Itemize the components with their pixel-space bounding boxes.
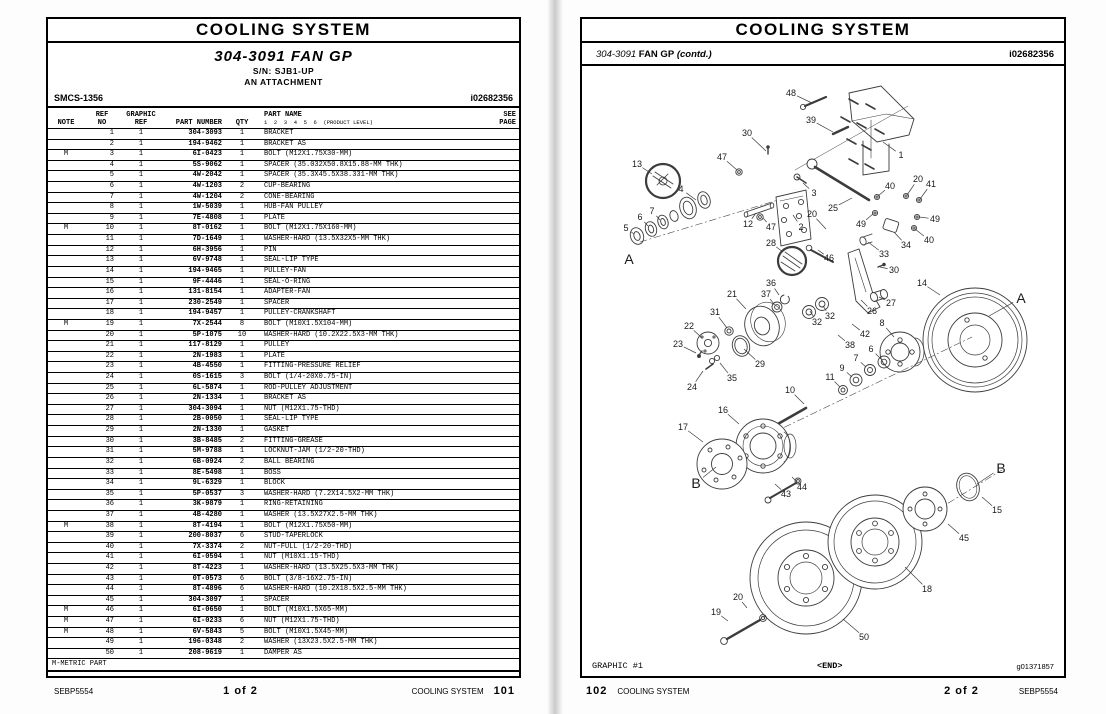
callout-leader <box>696 371 703 382</box>
cell-part: 6I-0594 <box>162 553 224 563</box>
table-row: 4218T-42231WASHER-HARD (13.5X25.5X3-MM T… <box>48 564 519 575</box>
cell-name: SEAL-O-RING <box>260 278 473 288</box>
cell-note <box>48 638 84 648</box>
cell-page <box>473 299 519 309</box>
cell-page <box>473 150 519 160</box>
page-title: COOLING SYSTEM <box>582 19 1064 43</box>
table-row: 3714B-42801WASHER (13.5X27X2.5-MM THK) <box>48 511 519 522</box>
cell-gref: 1 <box>120 140 162 150</box>
cell-page <box>473 193 519 203</box>
cell-qty: 3 <box>224 490 260 500</box>
cell-name: ADAPTER-FAN <box>260 288 473 298</box>
contd-label: (contd.) <box>677 49 712 60</box>
cell-ref: 10 <box>84 224 120 234</box>
cell-note: M <box>48 320 84 330</box>
cell-note <box>48 511 84 521</box>
table-row: 811W-50391HUB-FAN PULLEY <box>48 203 519 214</box>
callout-number: 40 <box>924 235 934 245</box>
cell-qty: 6 <box>224 617 260 627</box>
cell-qty: 1 <box>224 129 260 139</box>
table-row: 2612N-13341BRACKET AS <box>48 394 519 405</box>
cell-name: BRACKET <box>260 129 473 139</box>
page-right: COOLING SYSTEM 304-3091 FAN GP (contd.) … <box>580 17 1066 678</box>
cell-part: 4W-1203 <box>162 182 224 192</box>
cell-gref: 1 <box>120 596 162 606</box>
callout-leader <box>684 347 696 353</box>
callout-number: 1 <box>898 150 903 160</box>
sheet-number: 1 of 2 <box>223 685 258 697</box>
cell-ref: 25 <box>84 384 120 394</box>
cell-qty: 1 <box>224 140 260 150</box>
callout-leader <box>915 229 924 236</box>
cell-qty: 1 <box>224 500 260 510</box>
table-row: M4716I-02336NUT (M12X1.75-THD) <box>48 617 519 628</box>
cell-qty: 6 <box>224 585 260 595</box>
page-number: 101 <box>494 685 515 697</box>
cell-name: BOLT (M12X1.75X30-MM) <box>260 150 473 160</box>
cell-note <box>48 299 84 309</box>
table-row: 171230-25491SPACER <box>48 299 519 310</box>
cell-gref: 1 <box>120 447 162 457</box>
cell-name: STUD-TAPERLOCK <box>260 532 473 542</box>
cell-note <box>48 214 84 224</box>
cell-page <box>473 628 519 638</box>
table-header: NOTE REF NO GRAPHIC REF PART NUMBER QTY … <box>48 108 519 129</box>
cell-ref: 22 <box>84 352 120 362</box>
cell-qty: 1 <box>224 394 260 404</box>
cell-ref: 35 <box>84 490 120 500</box>
cell-gref: 1 <box>120 278 162 288</box>
cell-part: 304-3094 <box>162 405 224 415</box>
cell-ref: 7 <box>84 193 120 203</box>
sheet-number: 2 of 2 <box>944 685 979 697</box>
cell-ref: 47 <box>84 617 120 627</box>
cell-page <box>473 320 519 330</box>
cell-page <box>473 394 519 404</box>
table-row: 1216H-39561PIN <box>48 246 519 257</box>
cell-name: BALL BEARING <box>260 458 473 468</box>
cell-part: 8T-4194 <box>162 522 224 532</box>
cell-note: M <box>48 606 84 616</box>
cell-note: M <box>48 617 84 627</box>
cell-qty: 1 <box>224 267 260 277</box>
cell-name: SPACER <box>260 596 473 606</box>
cell-note <box>48 553 84 563</box>
cell-part: 7X-2544 <box>162 320 224 330</box>
table-row: 2410S-16153BOLT (1/4-20X0.75-IN) <box>48 373 519 384</box>
callout-number: 29 <box>755 359 765 369</box>
callout-number: 36 <box>766 278 776 288</box>
cell-part: 196-0348 <box>162 638 224 648</box>
callout-leader <box>880 267 888 269</box>
view-letter: B <box>691 475 700 491</box>
cell-gref: 1 <box>120 182 162 192</box>
cell-qty: 2 <box>224 543 260 553</box>
callout-number: 10 <box>785 385 795 395</box>
col-part-name: PART NAME1 2 3 4 5 6 (PRODUCT LEVEL) <box>260 111 473 127</box>
cell-gref: 1 <box>120 575 162 585</box>
cell-page <box>473 267 519 277</box>
cell-note <box>48 331 84 341</box>
callout-leader <box>907 184 914 195</box>
cell-page <box>473 246 519 256</box>
callout-number: 33 <box>879 249 889 259</box>
callout-number: 9 <box>839 363 844 373</box>
cell-note <box>48 278 84 288</box>
cell-part: 117-8129 <box>162 341 224 351</box>
cell-name: CONE-BEARING <box>260 193 473 203</box>
cell-part: 6I-0650 <box>162 606 224 616</box>
callout-leader <box>817 123 833 132</box>
cell-part: 5S-9062 <box>162 161 224 171</box>
cell-name: BLOCK <box>260 479 473 489</box>
page-title: COOLING SYSTEM <box>48 19 519 43</box>
callout-number: 34 <box>901 240 911 250</box>
doc-id: i02682356 <box>1009 49 1054 60</box>
group-number: 304-3091 <box>596 49 636 60</box>
cell-part: 194-9465 <box>162 267 224 277</box>
cell-ref: 29 <box>84 426 120 436</box>
cell-note <box>48 384 84 394</box>
cell-name: BOLT (M12X1.75X160-MM) <box>260 224 473 234</box>
cell-gref: 1 <box>120 649 162 659</box>
table-row: 2015P-107510WASHER-HARD (10.2X22.5X3-MM … <box>48 331 519 342</box>
cell-note <box>48 405 84 415</box>
cell-name: BOLT (M12X1.75X50-MM) <box>260 522 473 532</box>
cell-note <box>48 564 84 574</box>
cell-qty: 2 <box>224 193 260 203</box>
cell-gref: 1 <box>120 479 162 489</box>
graphic-footer: GRAPHIC #1 <END> g01371857 <box>592 661 1054 671</box>
callout-leader <box>803 183 809 189</box>
cell-name: BOSS <box>260 469 473 479</box>
cell-name: SPACER (35.032X50.8X15.88-MM THK) <box>260 161 473 171</box>
cell-qty: 1 <box>224 352 260 362</box>
cell-note <box>48 129 84 139</box>
section-label: COOLING SYSTEM <box>412 687 484 696</box>
callout-leader <box>878 190 885 196</box>
table-row: M1917X-25448BOLT (M10X1.5X104-MM) <box>48 320 519 331</box>
callout-number: 27 <box>886 298 896 308</box>
cell-page <box>473 161 519 171</box>
cell-gref: 1 <box>120 288 162 298</box>
callout-number: 49 <box>930 214 940 224</box>
cell-name: BOLT (3/8-16X2.75-IN) <box>260 575 473 585</box>
callout-leader <box>977 473 994 484</box>
cell-name: DAMPER AS <box>260 649 473 659</box>
table-row: 391200-80376STUD-TAPERLOCK <box>48 532 519 543</box>
cell-ref: 28 <box>84 415 120 425</box>
cell-part: 5P-1075 <box>162 331 224 341</box>
cell-name: NUT-FULL (1/2-20-THD) <box>260 543 473 553</box>
col-part-number: PART NUMBER <box>162 119 224 127</box>
cell-part: 9F-4446 <box>162 278 224 288</box>
cell-qty: 2 <box>224 437 260 447</box>
callout-number: 26 <box>867 306 877 316</box>
cell-qty: 1 <box>224 553 260 563</box>
callout-leader <box>868 242 879 250</box>
cell-name: BOLT (1/4-20X0.75-IN) <box>260 373 473 383</box>
cell-gref: 1 <box>120 150 162 160</box>
cell-page <box>473 437 519 447</box>
cell-ref: 39 <box>84 532 120 542</box>
callout-number: 18 <box>922 584 932 594</box>
cell-name: SEAL-LIP TYPE <box>260 415 473 425</box>
cell-part: 7X-3374 <box>162 543 224 553</box>
cell-ref: 37 <box>84 511 120 521</box>
cell-qty: 1 <box>224 278 260 288</box>
section-label: COOLING SYSTEM <box>617 687 689 696</box>
cell-gref: 1 <box>120 394 162 404</box>
footer-left-page: SEBP5554 1 of 2 COOLING SYSTEM 101 <box>46 682 521 700</box>
cell-qty: 1 <box>224 405 260 415</box>
cell-ref: 19 <box>84 320 120 330</box>
cell-ref: 43 <box>84 575 120 585</box>
cell-part: 5P-0537 <box>162 490 224 500</box>
cell-name: WASHER-HARD (10.2X22.5X3-MM THK) <box>260 331 473 341</box>
callout-number: 42 <box>860 329 870 339</box>
cell-name: SEAL-LIP TYPE <box>260 256 473 266</box>
table-row: M4616I-06501BOLT (M10X1.5X65-MM) <box>48 606 519 617</box>
callout-number: 48 <box>786 88 796 98</box>
table-row: M3818T-41941BOLT (M12X1.75X50-MM) <box>48 522 519 533</box>
cell-qty: 5 <box>224 628 260 638</box>
cell-page <box>473 649 519 659</box>
callout-number: 32 <box>825 311 835 321</box>
cell-page <box>473 553 519 563</box>
cell-part: 304-3093 <box>162 129 224 139</box>
cell-qty: 8 <box>224 320 260 330</box>
cell-qty: 1 <box>224 214 260 224</box>
cell-note <box>48 267 84 277</box>
cell-page <box>473 606 519 616</box>
cell-ref: 26 <box>84 394 120 404</box>
serial-number: S/N: SJB1-UP <box>48 66 519 76</box>
callout-number: 3 <box>811 188 816 198</box>
cell-gref: 1 <box>120 585 162 595</box>
cell-name: SPACER (35.3X45.5X38.331-MM THK) <box>260 171 473 181</box>
cell-name: GASKET <box>260 426 473 436</box>
cell-part: 8T-0162 <box>162 224 224 234</box>
cell-part: 0S-1615 <box>162 373 224 383</box>
cell-part: 6V-5843 <box>162 628 224 638</box>
cell-part: 6B-0924 <box>162 458 224 468</box>
cell-part: 200-8037 <box>162 532 224 542</box>
table-row: 3613K-98791RING-RETAINING <box>48 500 519 511</box>
cell-page <box>473 341 519 351</box>
col-note: NOTE <box>48 119 84 127</box>
cell-qty: 2 <box>224 182 260 192</box>
cell-ref: 6 <box>84 182 120 192</box>
cell-name: FITTING-GREASE <box>260 437 473 447</box>
cell-qty: 6 <box>224 575 260 585</box>
cell-name: FITTING-PRESSURE RELIEF <box>260 362 473 372</box>
cell-gref: 1 <box>120 224 162 234</box>
cell-qty: 1 <box>224 426 260 436</box>
callout-leader <box>886 328 894 337</box>
cell-part: 3K-9879 <box>162 500 224 510</box>
cell-ref: 13 <box>84 256 120 266</box>
cell-name: BRACKET AS <box>260 140 473 150</box>
cell-qty: 1 <box>224 522 260 532</box>
table-row: 2812B-00501SEAL-LIP TYPE <box>48 415 519 426</box>
cell-name: BRACKET AS <box>260 394 473 404</box>
table-row: 2516L-58741ROD-PULLEY ADJUSTMENT <box>48 384 519 395</box>
callout-number: 12 <box>743 219 753 229</box>
callout-number: 28 <box>766 238 776 248</box>
callout-number: 30 <box>889 265 899 275</box>
cell-part: 9L-6329 <box>162 479 224 489</box>
cell-qty: 1 <box>224 203 260 213</box>
cell-page <box>473 532 519 542</box>
cell-gref: 1 <box>120 341 162 351</box>
cell-ref: 4 <box>84 161 120 171</box>
table-row: 714W-12042CONE-BEARING <box>48 193 519 204</box>
cell-gref: 1 <box>120 469 162 479</box>
callout-leader <box>919 217 929 218</box>
cell-ref: 5 <box>84 171 120 181</box>
callout-leader <box>752 137 766 151</box>
callout-leader <box>776 247 783 252</box>
cell-part: 304-3097 <box>162 596 224 606</box>
cell-gref: 1 <box>120 638 162 648</box>
graphic-id: g01371857 <box>1016 662 1054 671</box>
table-row: M316I-04231BOLT (M12X1.75X30-MM) <box>48 150 519 161</box>
cell-part: 0T-0573 <box>162 575 224 585</box>
table-row: 451304-30971SPACER <box>48 596 519 607</box>
cell-ref: 24 <box>84 373 120 383</box>
callout-number: 40 <box>885 181 895 191</box>
cell-gref: 1 <box>120 214 162 224</box>
callout-number: 24 <box>687 382 697 392</box>
cell-part: 8T-4896 <box>162 585 224 595</box>
cell-ref: 50 <box>84 649 120 659</box>
cell-part: 4W-1204 <box>162 193 224 203</box>
cell-part: 194-9462 <box>162 140 224 150</box>
callout-number: 21 <box>727 289 737 299</box>
callout-leader <box>835 382 840 387</box>
cell-page <box>473 543 519 553</box>
cell-note <box>48 585 84 595</box>
cell-part: 3B-8485 <box>162 437 224 447</box>
cell-qty: 1 <box>224 649 260 659</box>
cell-note <box>48 490 84 500</box>
cell-part: 4B-4280 <box>162 511 224 521</box>
callout-leader <box>797 96 812 103</box>
callout-leader <box>861 362 866 367</box>
cell-page <box>473 447 519 457</box>
cell-page <box>473 352 519 362</box>
cell-page <box>473 522 519 532</box>
catalog-spread: COOLING SYSTEM 304-3091 FAN GP S/N: SJB1… <box>0 0 1106 714</box>
cell-page <box>473 171 519 181</box>
table-row: 4418T-48966WASHER-HARD (10.2X18.5X2.5-MM… <box>48 585 519 596</box>
cell-page <box>473 288 519 298</box>
cell-gref: 1 <box>120 267 162 277</box>
callout-number: 6 <box>868 344 873 354</box>
table-row: 271304-30941NUT (M12X1.75-THD) <box>48 405 519 416</box>
cell-gref: 1 <box>120 543 162 553</box>
cell-name: WASHER (13.5X27X2.5-MM THK) <box>260 511 473 521</box>
cell-page <box>473 585 519 595</box>
cell-name: NUT (M12X1.75-THD) <box>260 617 473 627</box>
callout-number: 15 <box>992 505 1002 515</box>
callout-leader <box>795 395 804 404</box>
cell-part: 7D-1649 <box>162 235 224 245</box>
cell-gref: 1 <box>120 193 162 203</box>
cell-name: WASHER-HARD (7.2X14.5X2-MM THK) <box>260 490 473 500</box>
callout-leader <box>742 602 747 608</box>
metric-footnote: M-METRIC PART <box>48 659 519 672</box>
cell-ref: 11 <box>84 235 120 245</box>
media-number: SEBP5554 <box>1019 687 1058 696</box>
cell-name: BOLT (M10X1.5X45-MM) <box>260 628 473 638</box>
callout-leader <box>847 372 852 377</box>
cell-note: M <box>48 522 84 532</box>
cell-note <box>48 447 84 457</box>
cell-name: NUT (M12X1.75-THD) <box>260 405 473 415</box>
callout-number: 19 <box>711 607 721 617</box>
callout-leader <box>894 232 902 240</box>
cell-qty: 3 <box>224 373 260 383</box>
doc-id: i02682356 <box>470 93 513 103</box>
cell-name: WASHER-HARD (13.5X25.5X3-MM THK) <box>260 564 473 574</box>
footer-right-page: 102 COOLING SYSTEM 2 of 2 SEBP5554 <box>580 682 1066 700</box>
cell-part: 6L-5874 <box>162 384 224 394</box>
table-row: 3419L-63291BLOCK <box>48 479 519 490</box>
end-marker: <END> <box>817 661 843 671</box>
cell-gref: 1 <box>120 384 162 394</box>
cell-gref: 1 <box>120 362 162 372</box>
callout-number: 5 <box>623 223 628 233</box>
callout-leader <box>920 189 927 199</box>
smcs-code: SMCS-1356 <box>54 93 103 103</box>
cell-note <box>48 479 84 489</box>
cell-name: PULLEY <box>260 341 473 351</box>
cell-ref: 3 <box>84 150 120 160</box>
callout-leader <box>736 299 746 309</box>
cell-note <box>48 469 84 479</box>
cell-part: 1W-5039 <box>162 203 224 213</box>
cell-gref: 1 <box>120 299 162 309</box>
cell-ref: 27 <box>84 405 120 415</box>
cell-part: 7E-4808 <box>162 214 224 224</box>
cell-part: 2N-1334 <box>162 394 224 404</box>
cell-page <box>473 575 519 585</box>
cell-gref: 1 <box>120 256 162 266</box>
cell-qty: 10 <box>224 331 260 341</box>
callout-number: 17 <box>678 422 688 432</box>
cell-page <box>473 214 519 224</box>
view-letter: A <box>1016 290 1026 306</box>
callout-number: 8 <box>879 318 884 328</box>
callout-number: 47 <box>717 152 727 162</box>
cell-part: 2N-1983 <box>162 352 224 362</box>
cell-gref: 1 <box>120 129 162 139</box>
cell-qty: 1 <box>224 384 260 394</box>
callout-number: 23 <box>673 339 683 349</box>
cell-qty: 1 <box>224 564 260 574</box>
cell-note <box>48 256 84 266</box>
table-row: 3115M-97881LOCKNUT-JAM (1/2-20-THD) <box>48 447 519 458</box>
group-title-contd: 304-3091 FAN GP (contd.) <box>596 49 712 60</box>
cell-ref: 48 <box>84 628 120 638</box>
callout-number: 6 <box>637 212 642 222</box>
cell-note <box>48 437 84 447</box>
cell-part: 6I-0423 <box>162 150 224 160</box>
cell-page <box>473 415 519 425</box>
cell-part: 2N-1330 <box>162 426 224 436</box>
